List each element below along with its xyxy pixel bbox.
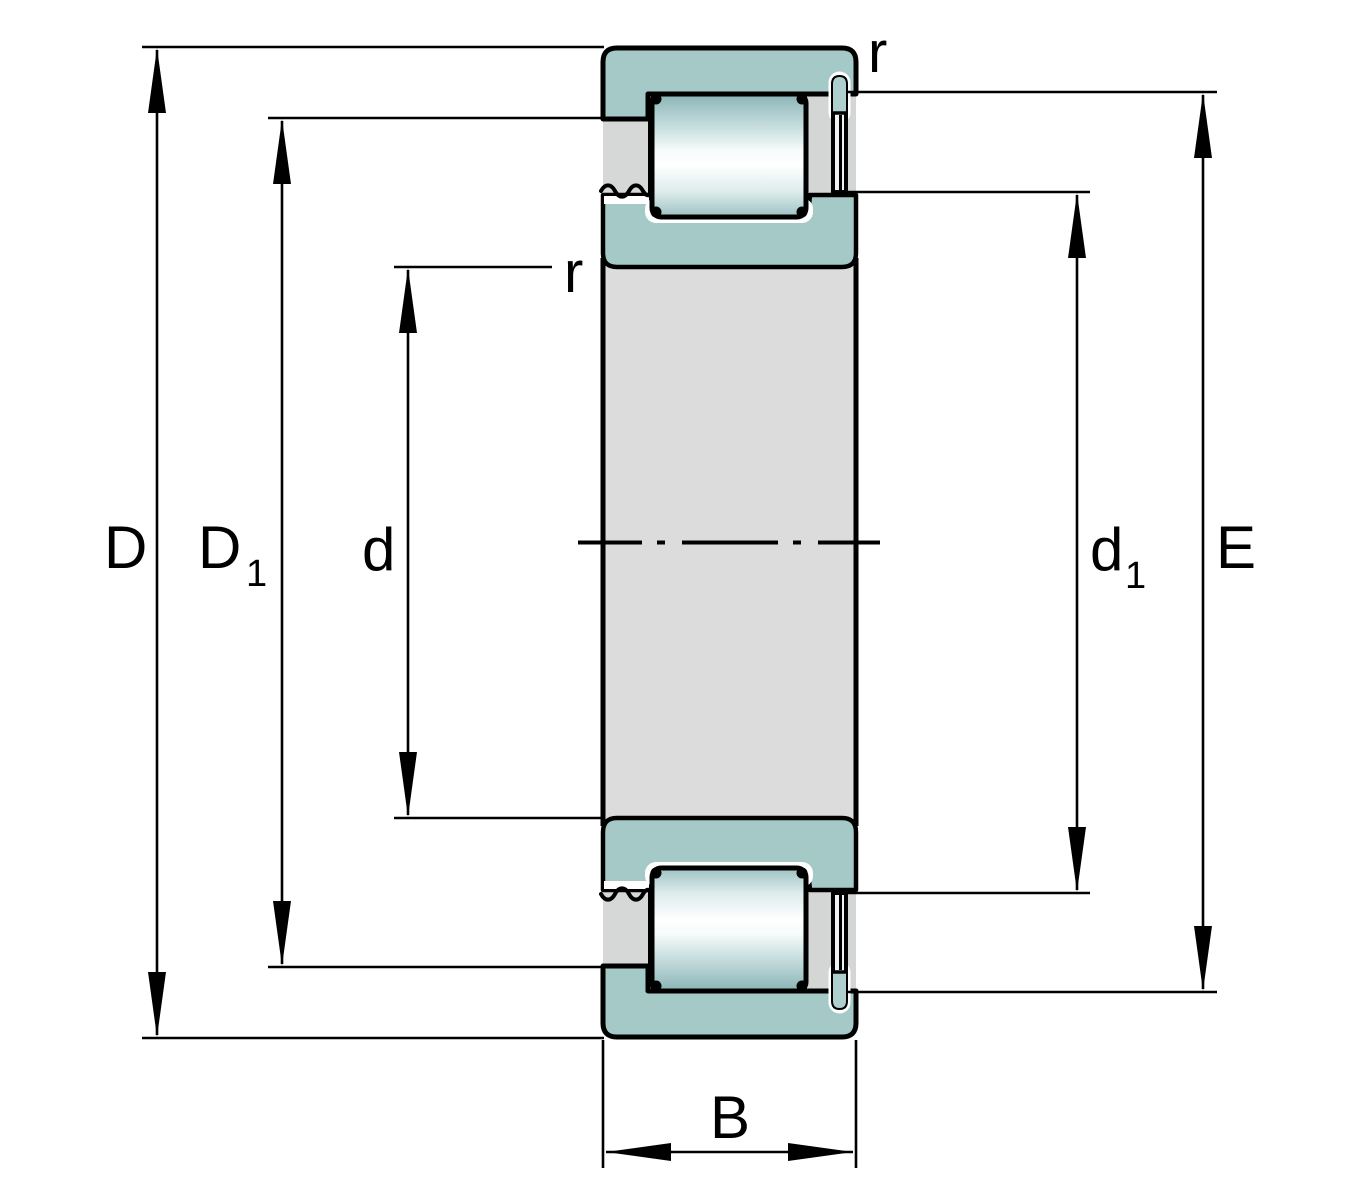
- bearing-cross-section-figure: D D 1 d r r d 1 E B: [0, 0, 1350, 1200]
- dimension-label-E: E: [1216, 514, 1256, 581]
- dimension-label-D1: D: [198, 514, 241, 581]
- bearing-drawing-canvas: D D 1 d r r d 1 E B: [0, 0, 1350, 1200]
- dimension-label-d: d: [362, 516, 395, 583]
- dimension-d1-extension-lines: [846, 192, 1090, 893]
- dimension-label-D1-subscript: 1: [246, 553, 267, 595]
- chamfer-label-r-outer: r: [868, 20, 887, 85]
- bearing-upper-half: [601, 48, 856, 267]
- bearing-lower-half: [601, 818, 856, 1037]
- dimension-E-extension-lines: [846, 92, 1217, 992]
- chamfer-label-r-bore: r: [564, 240, 583, 305]
- dimension-label-d1-subscript: 1: [1125, 555, 1146, 597]
- dimension-label-d1: d: [1090, 516, 1123, 583]
- dimension-d-extension-lines: [394, 267, 604, 818]
- dimension-D1-extension-lines: [268, 118, 604, 967]
- dimension-label-D: D: [104, 514, 147, 581]
- dimension-label-B: B: [710, 1084, 750, 1151]
